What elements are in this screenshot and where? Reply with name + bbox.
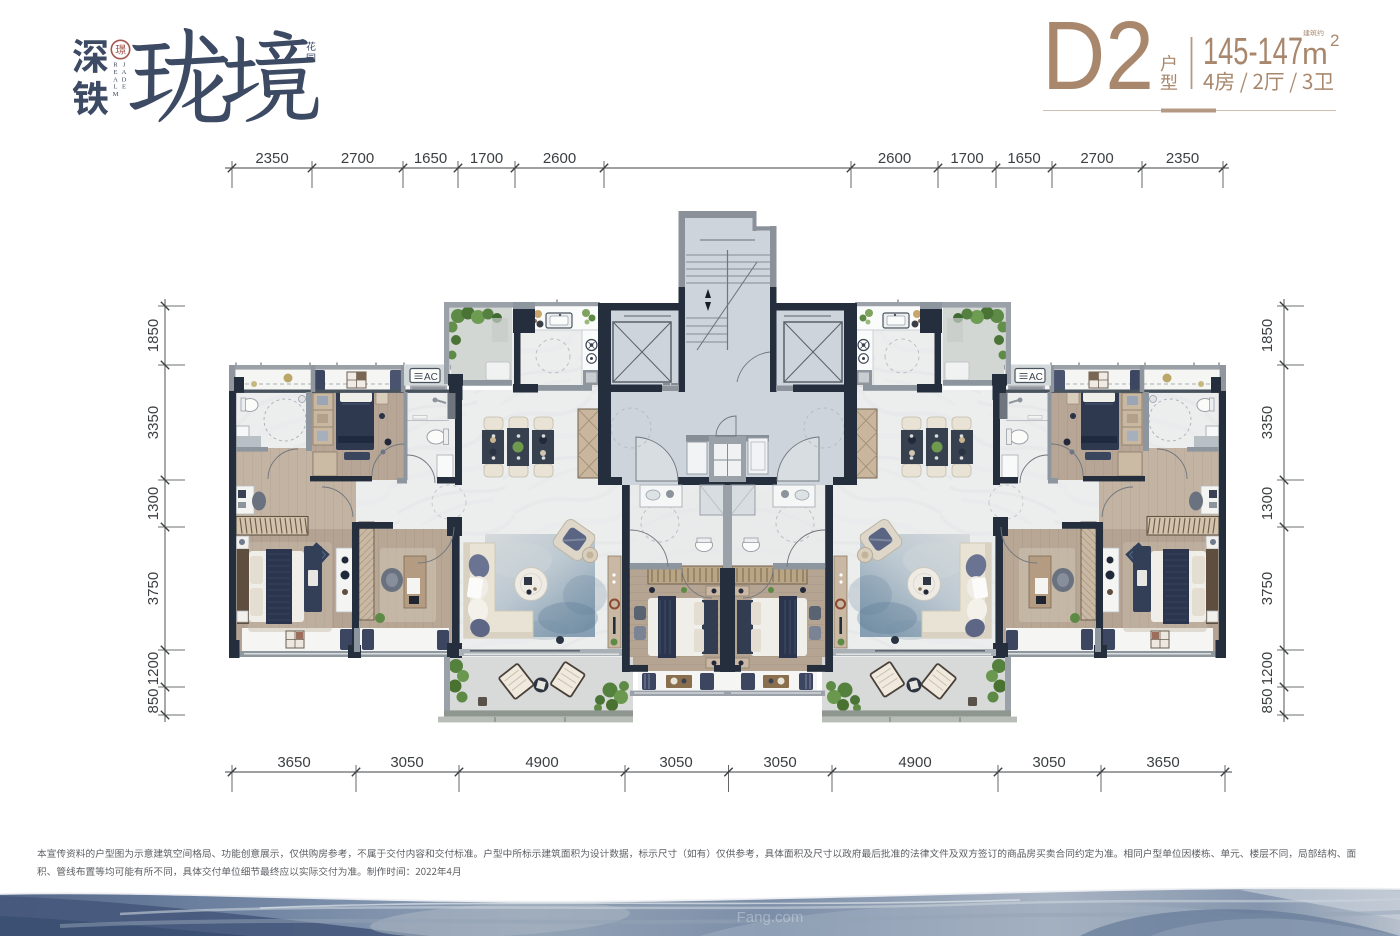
svg-text:3750: 3750 (145, 572, 162, 605)
svg-text:1850: 1850 (145, 319, 162, 352)
svg-text:3650: 3650 (1146, 754, 1179, 771)
svg-text:2600: 2600 (878, 150, 911, 167)
svg-text:m: m (1302, 36, 1328, 71)
svg-text:3350: 3350 (1259, 406, 1276, 439)
svg-text:850: 850 (145, 688, 162, 713)
svg-text:3750: 3750 (1259, 572, 1276, 605)
svg-text:R: R (113, 62, 118, 69)
svg-text:2700: 2700 (1080, 150, 1113, 167)
svg-text:1700: 1700 (470, 150, 503, 167)
svg-text:1650: 1650 (414, 150, 447, 167)
svg-text:1300: 1300 (1259, 487, 1276, 520)
svg-text:1200: 1200 (145, 652, 162, 685)
svg-text:D: D (122, 76, 127, 83)
svg-text:3350: 3350 (145, 406, 162, 439)
svg-text:1650: 1650 (1007, 150, 1040, 167)
svg-text:J: J (123, 62, 126, 69)
svg-text:1850: 1850 (1259, 319, 1276, 352)
svg-text:2: 2 (1330, 31, 1339, 50)
svg-text:1300: 1300 (145, 487, 162, 520)
svg-text:2350: 2350 (1166, 150, 1199, 167)
svg-text:850: 850 (1259, 688, 1276, 713)
svg-text:D2: D2 (1042, 1, 1154, 110)
svg-text:4900: 4900 (898, 754, 931, 771)
svg-text:A: A (122, 69, 127, 76)
svg-text:3050: 3050 (1032, 754, 1065, 771)
svg-text:3050: 3050 (659, 754, 692, 771)
svg-text:A: A (113, 76, 118, 83)
svg-text:E: E (113, 69, 117, 76)
svg-text:145-147: 145-147 (1203, 31, 1303, 73)
svg-text:AC: AC (1029, 372, 1043, 383)
svg-text:M: M (113, 91, 119, 98)
svg-text:4900: 4900 (525, 754, 558, 771)
svg-text:E: E (122, 84, 126, 91)
svg-text:2700: 2700 (341, 150, 374, 167)
svg-text:1700: 1700 (950, 150, 983, 167)
svg-text:1200: 1200 (1259, 652, 1276, 685)
svg-text:2600: 2600 (543, 150, 576, 167)
svg-text:Fang.com: Fang.com (737, 909, 804, 926)
svg-text:3050: 3050 (390, 754, 423, 771)
svg-text:AC: AC (424, 372, 438, 383)
svg-text:3050: 3050 (763, 754, 796, 771)
svg-text:L: L (113, 84, 117, 91)
svg-text:2350: 2350 (255, 150, 288, 167)
svg-text:3650: 3650 (277, 754, 310, 771)
